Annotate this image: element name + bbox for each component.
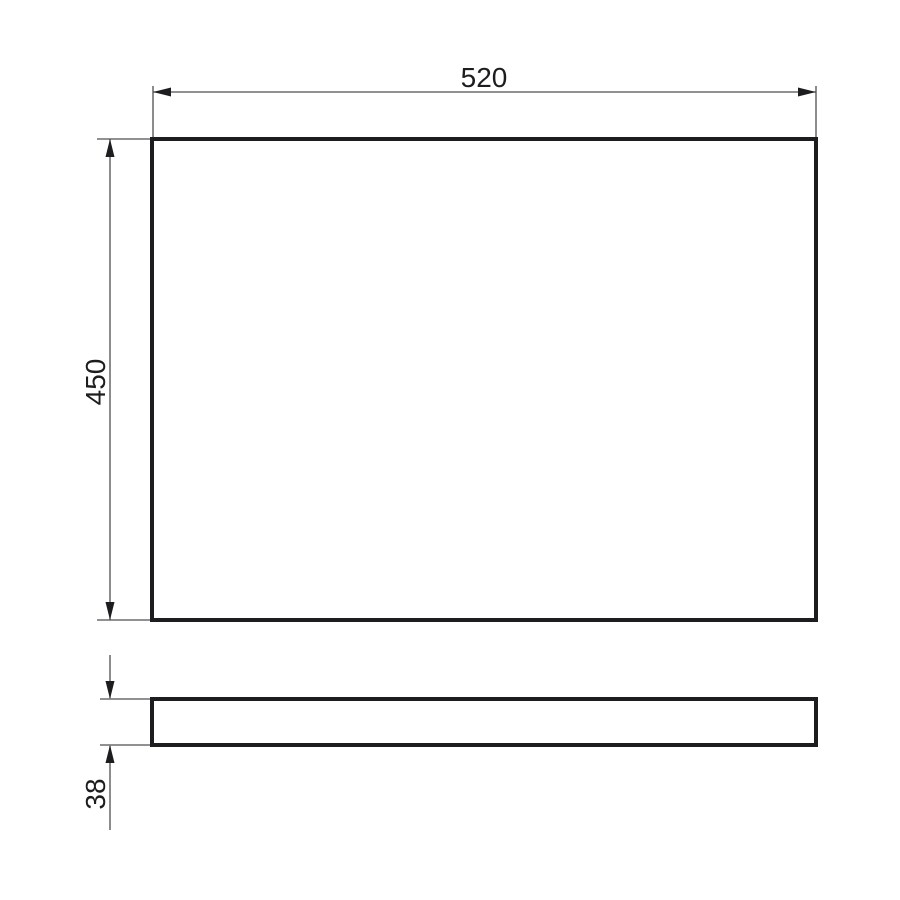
arrow-down-icon <box>106 602 115 620</box>
arrow-right-icon <box>798 88 816 97</box>
width-dimension-label: 520 <box>461 62 508 93</box>
panel-dimension-drawing: 520 450 38 <box>0 0 900 900</box>
object-outlines <box>152 139 816 745</box>
arrow-down-to-edge-icon <box>106 681 115 699</box>
arrow-up-icon <box>106 139 115 157</box>
panel-front-view <box>152 139 816 620</box>
thickness-dimension-label: 38 <box>80 778 111 809</box>
height-dimension-label: 450 <box>80 359 111 406</box>
technical-drawing-canvas: 520 450 38 <box>0 0 900 900</box>
width-dimension-lines <box>153 86 816 137</box>
arrow-left-icon <box>153 88 171 97</box>
panel-side-view <box>152 699 816 745</box>
arrow-up-to-edge-icon <box>106 745 115 763</box>
